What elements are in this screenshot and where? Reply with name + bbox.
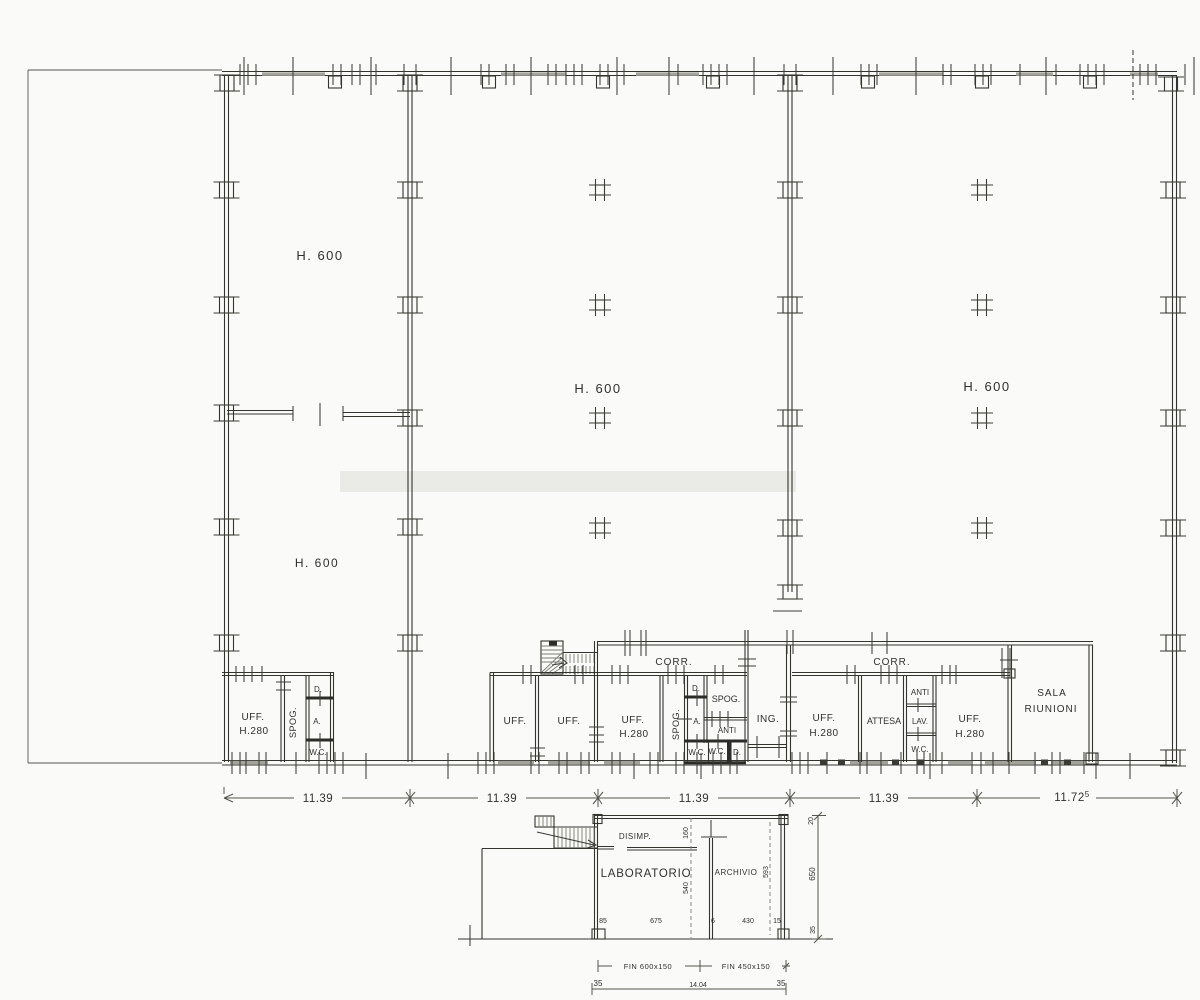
svg-text:LABORATORIO: LABORATORIO bbox=[601, 868, 692, 880]
svg-text:W.C.: W.C. bbox=[708, 747, 725, 756]
svg-text:UFF.: UFF. bbox=[812, 713, 835, 724]
svg-text:W.C.: W.C. bbox=[309, 748, 326, 757]
svg-text:UFF.: UFF. bbox=[958, 714, 981, 725]
svg-text:15: 15 bbox=[773, 918, 781, 925]
svg-text:593: 593 bbox=[763, 866, 770, 878]
svg-text:H.280: H.280 bbox=[809, 728, 838, 739]
svg-text:20: 20 bbox=[808, 817, 815, 825]
svg-text:ATTESA: ATTESA bbox=[867, 716, 901, 726]
svg-text:LAV.: LAV. bbox=[912, 717, 928, 726]
svg-text:6: 6 bbox=[711, 918, 715, 925]
svg-text:A.: A. bbox=[693, 717, 701, 726]
svg-text:FIN 450x150: FIN 450x150 bbox=[722, 962, 770, 971]
svg-text:W.C.: W.C. bbox=[688, 748, 705, 757]
svg-text:11.39: 11.39 bbox=[679, 793, 709, 805]
svg-text:SPOG.: SPOG. bbox=[288, 707, 298, 738]
svg-text:H. 600: H. 600 bbox=[574, 381, 621, 396]
svg-text:FIN 600x150: FIN 600x150 bbox=[624, 962, 672, 971]
svg-text:SPOG.: SPOG. bbox=[712, 694, 741, 704]
svg-text:D.: D. bbox=[314, 685, 322, 694]
svg-text:160: 160 bbox=[683, 827, 690, 839]
svg-text:650: 650 bbox=[808, 867, 817, 881]
svg-text:35: 35 bbox=[810, 926, 817, 934]
svg-text:14.04: 14.04 bbox=[689, 982, 707, 989]
svg-text:85: 85 bbox=[599, 918, 607, 925]
svg-text:430: 430 bbox=[742, 918, 754, 925]
svg-text:UFF.: UFF. bbox=[241, 712, 264, 723]
svg-text:H. 600: H. 600 bbox=[295, 556, 339, 570]
svg-text:ANTI: ANTI bbox=[911, 688, 929, 697]
svg-text:540: 540 bbox=[683, 882, 690, 894]
svg-text:SPOG.: SPOG. bbox=[671, 709, 681, 740]
svg-text:11.39: 11.39 bbox=[869, 793, 899, 805]
svg-text:D.: D. bbox=[733, 748, 741, 757]
svg-text:ARCHIVIO: ARCHIVIO bbox=[715, 868, 758, 877]
svg-text:H.280: H.280 bbox=[239, 726, 268, 737]
svg-text:ANTI: ANTI bbox=[718, 726, 736, 735]
svg-text:ING.: ING. bbox=[757, 714, 780, 725]
svg-text:A.: A. bbox=[313, 717, 321, 726]
svg-text:SALA: SALA bbox=[1037, 688, 1067, 699]
svg-text:H. 600: H. 600 bbox=[963, 379, 1010, 394]
svg-text:CORR.: CORR. bbox=[873, 657, 910, 668]
svg-text:D.: D. bbox=[692, 684, 700, 693]
svg-text:UFF.: UFF. bbox=[557, 716, 580, 727]
svg-text:DISIMP.: DISIMP. bbox=[619, 832, 651, 841]
svg-text:H. 600: H. 600 bbox=[296, 248, 343, 263]
svg-text:UFF.: UFF. bbox=[621, 715, 644, 726]
svg-text:35: 35 bbox=[777, 979, 786, 988]
svg-text:UFF.: UFF. bbox=[503, 716, 526, 727]
svg-text:11.725: 11.725 bbox=[1054, 790, 1089, 804]
svg-text:H.280: H.280 bbox=[955, 729, 984, 740]
svg-text:W.C.: W.C. bbox=[911, 745, 928, 754]
svg-text:RIUNIONI: RIUNIONI bbox=[1025, 704, 1078, 715]
svg-text:H.280: H.280 bbox=[619, 729, 648, 740]
svg-text:11.39: 11.39 bbox=[487, 793, 517, 805]
svg-text:675: 675 bbox=[650, 918, 662, 925]
svg-text:35: 35 bbox=[594, 979, 603, 988]
svg-text:CORR.: CORR. bbox=[655, 657, 692, 668]
svg-text:11.39: 11.39 bbox=[303, 793, 333, 805]
